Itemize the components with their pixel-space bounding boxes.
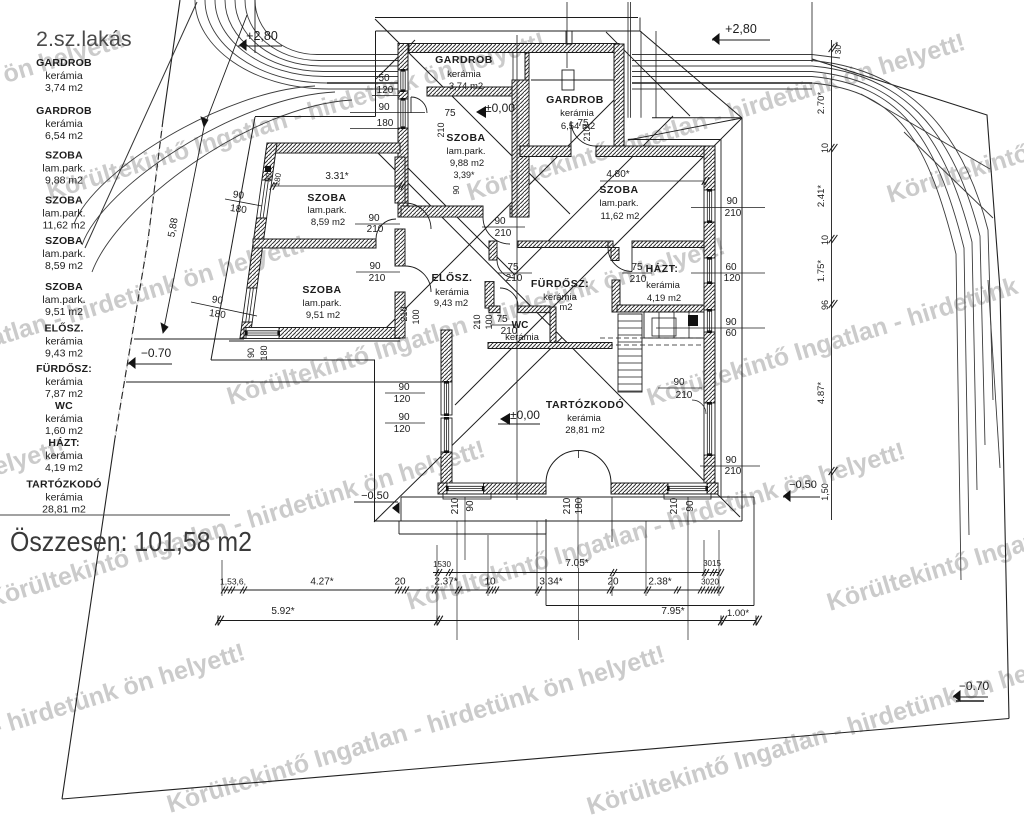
svg-text:−0.50: −0.50 (789, 479, 817, 491)
svg-text:75: 75 (507, 262, 519, 273)
svg-text:3,74 m2: 3,74 m2 (45, 82, 83, 94)
svg-text:kerámia: kerámia (45, 70, 83, 82)
svg-text:kerámia: kerámia (45, 413, 83, 425)
svg-text:210: 210 (369, 273, 386, 284)
svg-text:1,60 m2: 1,60 m2 (45, 425, 83, 437)
svg-text:11,62 m2: 11,62 m2 (43, 220, 86, 232)
svg-text:lam.park.: lam.park. (42, 294, 85, 306)
svg-text:60: 60 (725, 328, 737, 339)
svg-text:m2: m2 (559, 302, 572, 313)
svg-text:210: 210 (501, 326, 518, 337)
svg-text:9,51 m2: 9,51 m2 (306, 310, 340, 321)
svg-text:210: 210 (582, 126, 592, 141)
svg-text:lam.park.: lam.park. (599, 198, 638, 209)
svg-text:120: 120 (377, 85, 394, 96)
svg-text:90: 90 (378, 102, 390, 113)
svg-text:+2,80: +2,80 (246, 29, 278, 43)
svg-text:SZOBA: SZOBA (45, 195, 83, 207)
svg-text:6,54 m2: 6,54 m2 (45, 130, 83, 142)
svg-text:kerámia: kerámia (567, 413, 602, 424)
svg-text:96: 96 (820, 300, 830, 310)
svg-text:210: 210 (725, 208, 742, 219)
svg-text:100: 100 (484, 314, 494, 329)
svg-text:90: 90 (369, 261, 381, 272)
svg-text:9,51 m2: 9,51 m2 (45, 306, 83, 318)
svg-text:kerámia: kerámia (447, 69, 482, 80)
svg-text:20: 20 (394, 577, 406, 588)
svg-text:kerámia: kerámia (45, 376, 83, 388)
svg-text:120: 120 (724, 273, 741, 284)
svg-text:kerámia: kerámia (45, 118, 83, 130)
svg-text:lam.park.: lam.park. (307, 205, 346, 216)
svg-text:8,59 m2: 8,59 m2 (311, 217, 345, 228)
svg-text:90: 90 (725, 455, 737, 466)
svg-text:lam.park.: lam.park. (446, 146, 485, 157)
svg-text:210: 210 (450, 497, 461, 514)
svg-text:GARDROB: GARDROB (36, 105, 92, 117)
svg-text:90: 90 (368, 213, 380, 224)
svg-text:GARDROB: GARDROB (36, 57, 92, 69)
svg-text:9,88 m2: 9,88 m2 (450, 158, 484, 169)
svg-text:lam.park.: lam.park. (302, 298, 341, 309)
svg-text:90: 90 (232, 189, 245, 202)
svg-text:2.38*: 2.38* (648, 577, 671, 588)
svg-text:30*: 30* (833, 41, 843, 54)
svg-text:3,74 m2: 3,74 m2 (449, 81, 483, 92)
svg-text:180: 180 (377, 118, 394, 129)
svg-text:7.95*: 7.95* (661, 606, 684, 617)
svg-text:10: 10 (820, 235, 830, 245)
svg-text:WC: WC (55, 400, 73, 412)
svg-text:4,19 m2: 4,19 m2 (647, 293, 681, 304)
svg-text:20: 20 (607, 577, 619, 588)
svg-text:9,43 m2: 9,43 m2 (434, 298, 468, 309)
svg-text:3.31*: 3.31* (325, 171, 348, 182)
svg-text:210: 210 (399, 306, 409, 321)
svg-text:100: 100 (411, 309, 421, 324)
svg-text:210: 210 (630, 274, 647, 285)
svg-text:50: 50 (378, 73, 390, 84)
svg-text:4,19 m2: 4,19 m2 (45, 462, 83, 474)
svg-text:SZOBA: SZOBA (45, 281, 83, 293)
svg-text:28,81 m2: 28,81 m2 (565, 425, 605, 436)
svg-text:90: 90 (398, 382, 410, 393)
svg-text:210: 210 (472, 314, 482, 329)
svg-text:2.41*: 2.41* (816, 185, 827, 207)
svg-text:90: 90 (452, 185, 461, 194)
svg-text:±0,00: ±0,00 (485, 101, 515, 115)
svg-text:210: 210 (562, 497, 573, 514)
svg-text:210: 210 (367, 224, 384, 235)
svg-text:60: 60 (725, 262, 737, 273)
svg-text:1530: 1530 (433, 560, 451, 569)
svg-text:75: 75 (631, 262, 643, 273)
svg-text:SZOBA: SZOBA (446, 132, 485, 144)
svg-text:±0,00: ±0,00 (510, 408, 540, 422)
svg-text:9,43 m2: 9,43 m2 (45, 348, 83, 360)
svg-text:SZOBA: SZOBA (45, 150, 83, 162)
svg-text:7,87 m2: 7,87 m2 (45, 388, 83, 400)
svg-text:GARDROB: GARDROB (546, 94, 604, 106)
svg-text:9,88 m2: 9,88 m2 (45, 175, 83, 187)
svg-text:1.00*: 1.00* (727, 608, 749, 619)
svg-text:5.92*: 5.92* (271, 606, 294, 617)
svg-text:8,59 m2: 8,59 m2 (45, 260, 83, 272)
svg-text:GARDROB: GARDROB (435, 54, 493, 66)
svg-text:−0.70: −0.70 (141, 346, 172, 360)
svg-text:lam.park.: lam.park. (42, 163, 85, 175)
svg-text:210: 210 (676, 390, 693, 401)
svg-text:90: 90 (465, 500, 476, 512)
svg-text:120: 120 (394, 424, 411, 435)
svg-text:210: 210 (436, 122, 446, 137)
svg-text:3,39*: 3,39* (453, 170, 475, 180)
svg-text:2.sz.lakás: 2.sz.lakás (36, 27, 132, 51)
svg-text:3020: 3020 (701, 578, 719, 587)
svg-text:SZOBA: SZOBA (307, 192, 346, 204)
svg-text:FÜRDŐSZ:: FÜRDŐSZ: (531, 277, 589, 290)
svg-text:11,62 m2: 11,62 m2 (601, 211, 640, 222)
svg-text:75: 75 (496, 314, 508, 325)
svg-text:1,53,6,: 1,53,6, (220, 577, 246, 587)
svg-text:2.70*: 2.70* (816, 92, 827, 114)
svg-text:90: 90 (211, 294, 224, 307)
svg-text:lam.park.: lam.park. (42, 208, 85, 220)
svg-text:210: 210 (725, 466, 742, 477)
svg-text:kerámia: kerámia (45, 450, 83, 462)
svg-text:90: 90 (685, 500, 696, 512)
svg-text:Öszzesen: 101,58 m2: Öszzesen: 101,58 m2 (10, 526, 252, 557)
svg-text:90: 90 (494, 216, 506, 227)
svg-text:−0.70: −0.70 (959, 679, 990, 693)
svg-text:kerámia: kerámia (646, 280, 681, 291)
svg-text:TARTÓZKODÓ: TARTÓZKODÓ (26, 478, 101, 491)
svg-text:210: 210 (506, 273, 523, 284)
svg-text:120: 120 (394, 394, 411, 405)
svg-text:75: 75 (444, 108, 456, 119)
svg-text:7.05*: 7.05* (565, 558, 588, 569)
svg-text:ELŐSZ.: ELŐSZ. (432, 271, 473, 284)
svg-text:lam.park.: lam.park. (42, 248, 85, 260)
svg-text:4.80*: 4.80* (606, 169, 629, 180)
svg-text:90: 90 (673, 377, 685, 388)
svg-text:kerámia: kerámia (45, 492, 83, 504)
svg-text:ELŐSZ.: ELŐSZ. (44, 322, 83, 335)
svg-text:4.27*: 4.27* (310, 577, 333, 588)
svg-text:1,50: 1,50 (820, 483, 830, 501)
svg-text:+2,80: +2,80 (725, 22, 757, 36)
svg-text:28,81 m2: 28,81 m2 (42, 504, 86, 516)
svg-text:90: 90 (398, 412, 410, 423)
svg-text:TARTÓZKODÓ: TARTÓZKODÓ (546, 398, 624, 411)
svg-text:10: 10 (820, 143, 830, 153)
svg-text:HÁZT:: HÁZT: (48, 436, 79, 449)
svg-text:90: 90 (246, 348, 256, 358)
svg-text:kerámia: kerámia (45, 336, 83, 348)
svg-text:210: 210 (495, 228, 512, 239)
svg-text:SZOBA: SZOBA (599, 184, 638, 196)
svg-text:180: 180 (574, 497, 585, 514)
svg-text:FÜRDŐSZ:: FÜRDŐSZ: (36, 362, 92, 375)
svg-text:SZOBA: SZOBA (45, 235, 83, 247)
svg-text:210: 210 (669, 497, 680, 514)
svg-text:180: 180 (259, 345, 269, 360)
svg-text:90: 90 (726, 196, 738, 207)
svg-text:3.34*: 3.34* (539, 577, 562, 588)
svg-text:1.75*: 1.75* (816, 260, 827, 282)
svg-text:kerámia: kerámia (435, 287, 470, 298)
svg-text:SZOBA: SZOBA (302, 284, 341, 296)
svg-text:2.37*: 2.37* (434, 577, 457, 588)
svg-text:4.87*: 4.87* (816, 382, 827, 404)
svg-text:10: 10 (484, 577, 496, 588)
svg-text:90: 90 (725, 317, 737, 328)
